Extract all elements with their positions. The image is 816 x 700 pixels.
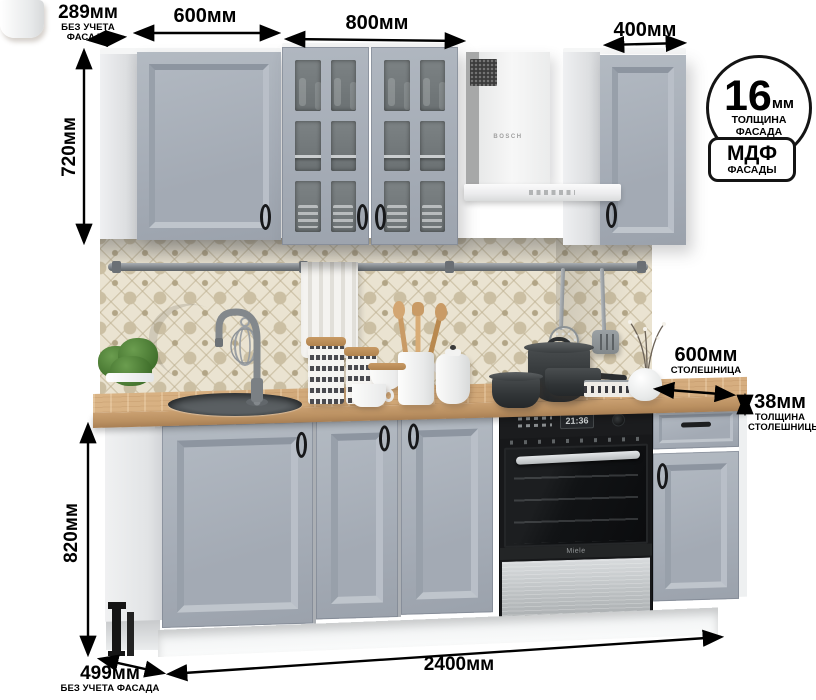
hood-controls <box>529 190 575 195</box>
spoon-head <box>393 301 405 319</box>
utensil-crock <box>398 352 434 405</box>
wall-cabinet-600-handle <box>260 204 271 230</box>
adjustable-leg <box>112 604 121 656</box>
canister-large <box>308 344 344 404</box>
spoon-head <box>435 303 447 321</box>
dim-line-800 <box>287 39 463 41</box>
oven-racks <box>514 464 638 544</box>
spatula-head <box>592 330 619 354</box>
glass-pane <box>295 121 321 172</box>
glass-pane <box>384 60 410 111</box>
rail-bracket <box>637 261 646 273</box>
dim-line-400 <box>606 43 684 45</box>
glass-pane <box>384 121 410 172</box>
leg-foot <box>108 651 125 656</box>
dim-label-720: 720мм <box>60 117 80 177</box>
spice-jar-row <box>584 382 634 397</box>
glass-pane <box>420 181 446 232</box>
glass-pane <box>420 121 446 172</box>
glass-pane <box>295 60 321 111</box>
base-side-panel-right <box>739 407 747 597</box>
dim-value: 400мм <box>614 20 677 41</box>
faucet <box>205 296 280 408</box>
glass-panes <box>295 60 356 232</box>
hood-vent-grille <box>470 59 497 86</box>
utensil-group <box>393 301 447 356</box>
wall-cabinet-400-handle <box>606 202 617 228</box>
glass-pane <box>384 181 410 232</box>
dim-label-800: 800мм <box>346 13 409 34</box>
dim-note: СТОЛЕШНИЦА <box>655 366 757 376</box>
pot-small-rim <box>489 372 543 381</box>
base-door-right <box>401 413 493 615</box>
dim-value: 289мм <box>40 3 136 23</box>
wall-cabinet-400-side <box>563 52 600 245</box>
canister-large-lid <box>306 337 346 346</box>
drawer-unit-door-handle <box>657 463 668 489</box>
badge-unit: мм <box>772 98 794 111</box>
base-drawer-unit <box>653 407 739 602</box>
dim-value: 720мм <box>60 117 80 177</box>
kettle <box>436 354 470 404</box>
dim-value: 600мм <box>174 6 237 27</box>
glass-pane <box>331 60 357 111</box>
dim-value: 820мм <box>62 503 82 563</box>
base-sink-door-handle <box>296 432 307 458</box>
wall-cabinet-800-glass <box>282 47 458 245</box>
drawer-unit-door <box>653 451 739 602</box>
oven-door-handle <box>516 451 640 465</box>
blossom <box>634 334 637 337</box>
pot-large-rim <box>524 342 594 353</box>
plant-pot-rim <box>106 373 154 382</box>
drawer-handle <box>681 422 711 428</box>
base-door-left <box>316 417 398 619</box>
badge-note: ТОЛЩИНА <box>732 114 787 126</box>
glass-panes <box>384 60 445 232</box>
wooden-utensils <box>392 300 448 358</box>
kitchen-product-render: BOSCH 21:36 <box>0 0 816 700</box>
glass-pane <box>331 121 357 172</box>
base-door-left-handle <box>379 425 390 451</box>
blossom <box>662 322 666 326</box>
dim-note: БЕЗ УЧЕТА ФАСАДА <box>40 23 136 43</box>
spoon <box>430 316 440 356</box>
glass-door-left <box>282 47 369 245</box>
glass-pane <box>295 181 321 232</box>
dim-value: 499мм <box>60 664 160 684</box>
blossom <box>643 327 647 331</box>
spoon <box>400 314 406 356</box>
blossom <box>628 320 632 324</box>
badge-value-row: 16 мм <box>724 78 794 115</box>
wall-cabinet-600-side <box>100 54 137 239</box>
kettle-lid <box>445 349 461 356</box>
badge-value: 16 <box>724 78 772 115</box>
badge-value: МДФ <box>727 143 777 164</box>
dim-label-820: 820мм <box>62 503 82 563</box>
plant-pot <box>0 0 44 38</box>
faucet-spout <box>215 338 223 347</box>
dim-label-counter-depth: 600мм СТОЛЕШНИЦА <box>655 345 757 376</box>
spatula-head <box>412 302 424 316</box>
dim-value: 2400мм <box>424 655 494 675</box>
wall-cabinet-800-handle-left <box>357 204 368 230</box>
base-side-panel-left <box>105 424 162 622</box>
wall-cabinet-800-handle-right <box>375 204 386 230</box>
dim-label-400: 400мм <box>614 20 677 41</box>
kettle-knob <box>450 345 456 350</box>
rail-bracket <box>112 261 121 273</box>
bowl-lid <box>368 363 406 370</box>
adjustable-leg <box>127 612 134 656</box>
oven: 21:36 Miele <box>500 391 652 634</box>
dim-value: 38мм <box>748 392 812 413</box>
cup <box>352 384 386 407</box>
glass-pane <box>331 181 357 232</box>
dim-label-base-depth: 499мм БЕЗ УЧЕТА ФАСАДА <box>60 664 160 694</box>
hood-brand-label: BOSCH <box>478 134 538 140</box>
base-door-right-handle <box>408 423 419 449</box>
oven-door-glass <box>504 444 648 548</box>
badge-note: ФАСАДЫ <box>727 164 776 176</box>
faucet-body <box>251 378 263 402</box>
dim-value: 800мм <box>346 13 409 34</box>
dim-value: 600мм <box>655 345 757 366</box>
dim-note: БЕЗ УЧЕТА ФАСАДА <box>60 684 160 694</box>
dim-label-counter-thickness: 38мм ТОЛЩИНА СТОЛЕШНИЦЫ <box>748 392 812 433</box>
dim-label-2400: 2400мм <box>424 655 494 675</box>
base-sink-door <box>162 422 313 628</box>
dim-note: СТОЛЕШНИЦЫ <box>748 423 812 433</box>
canister-small-lid <box>344 347 379 356</box>
blossom <box>656 336 659 339</box>
glass-pane <box>420 60 446 111</box>
rail-bracket <box>445 261 454 273</box>
dim-label-600: 600мм <box>174 6 237 27</box>
badge-material: МДФ ФАСАДЫ <box>708 137 796 182</box>
dim-label-wall-depth: 289мм БЕЗ УЧЕТА ФАСАДА <box>40 3 136 43</box>
utensil-rail <box>108 263 648 271</box>
